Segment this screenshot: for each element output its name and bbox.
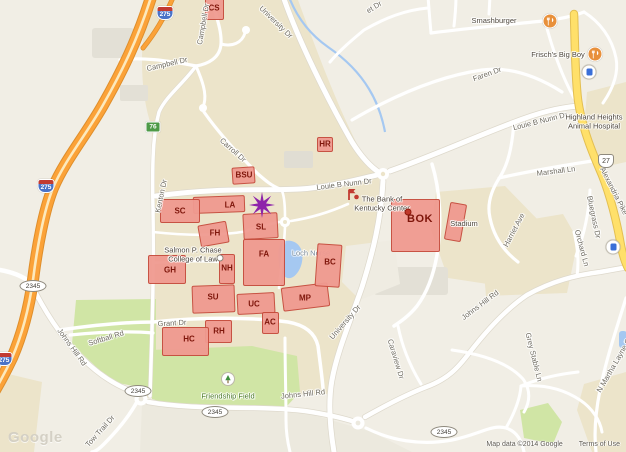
pond — [619, 331, 626, 348]
map-attribution: Map data ©2014 Google — [486, 441, 562, 448]
terms-of-use-link[interactable]: Terms of Use — [579, 441, 620, 448]
gray-building — [284, 151, 313, 168]
park-friendship-field — [150, 346, 300, 410]
map-canvas[interactable]: Loch Norse CSBSUHRLASCFHSLFANHGHSUUCMPBC… — [0, 0, 626, 452]
google-logo[interactable]: Google — [8, 429, 63, 446]
park-green — [72, 299, 156, 390]
parking-lot — [120, 85, 148, 101]
base-map — [0, 0, 626, 452]
